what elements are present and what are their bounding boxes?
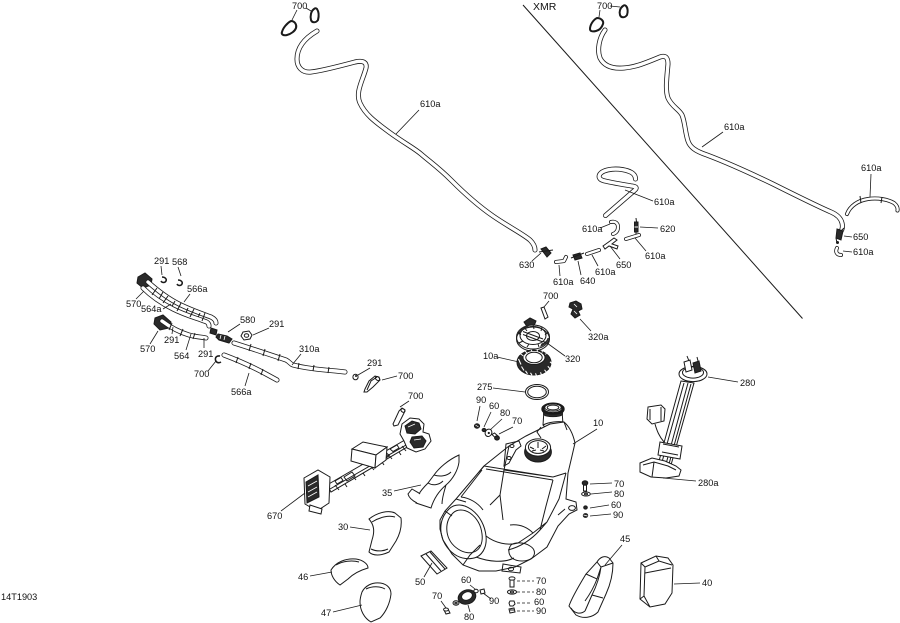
svg-text:291: 291	[198, 349, 213, 359]
svg-text:10: 10	[593, 418, 603, 428]
svg-text:700: 700	[398, 371, 413, 381]
svg-text:280: 280	[740, 378, 755, 388]
svg-text:564a: 564a	[141, 304, 162, 314]
svg-text:650: 650	[616, 260, 631, 270]
svg-text:50: 50	[415, 577, 425, 587]
svg-text:620: 620	[660, 224, 675, 234]
svg-text:46: 46	[298, 572, 308, 582]
svg-text:640: 640	[580, 276, 595, 286]
svg-text:70: 70	[512, 416, 522, 426]
svg-text:650: 650	[853, 232, 868, 242]
svg-text:47: 47	[321, 608, 331, 618]
svg-text:80: 80	[500, 408, 510, 418]
svg-text:60: 60	[489, 401, 499, 411]
svg-text:70: 70	[614, 479, 624, 489]
svg-text:275: 275	[477, 382, 492, 392]
svg-text:310a: 310a	[299, 344, 320, 354]
svg-text:320a: 320a	[588, 332, 609, 342]
svg-text:30: 30	[338, 522, 348, 532]
svg-text:610a: 610a	[861, 163, 882, 173]
svg-text:291: 291	[154, 256, 169, 266]
svg-text:610a: 610a	[724, 122, 745, 132]
svg-text:566a: 566a	[231, 387, 252, 397]
svg-text:566a: 566a	[187, 284, 208, 294]
svg-text:80: 80	[536, 587, 546, 597]
svg-text:580: 580	[240, 315, 255, 325]
svg-text:570: 570	[126, 299, 141, 309]
svg-text:14T1903: 14T1903	[1, 592, 37, 602]
svg-text:60: 60	[611, 500, 621, 510]
svg-text:610a: 610a	[595, 267, 616, 277]
svg-text:564: 564	[174, 351, 189, 361]
svg-text:700: 700	[543, 291, 558, 301]
svg-text:700: 700	[194, 369, 209, 379]
svg-text:291: 291	[367, 358, 382, 368]
svg-text:70: 70	[536, 576, 546, 586]
svg-text:320: 320	[565, 354, 580, 364]
svg-text:700: 700	[408, 391, 423, 401]
svg-text:35: 35	[382, 488, 392, 498]
svg-text:291: 291	[269, 319, 284, 329]
svg-text:280a: 280a	[698, 478, 719, 488]
svg-text:610a: 610a	[853, 247, 874, 257]
svg-text:90: 90	[489, 596, 499, 606]
svg-text:610a: 610a	[654, 197, 675, 207]
svg-text:10a: 10a	[483, 351, 499, 361]
svg-text:700: 700	[292, 1, 307, 11]
svg-text:70: 70	[432, 591, 442, 601]
svg-text:291: 291	[164, 335, 179, 345]
svg-text:XMR: XMR	[533, 1, 557, 13]
svg-text:610a: 610a	[582, 224, 603, 234]
svg-text:568: 568	[172, 257, 187, 267]
svg-text:45: 45	[620, 534, 630, 544]
svg-text:630: 630	[519, 260, 534, 270]
svg-text:610a: 610a	[420, 99, 441, 109]
svg-text:90: 90	[536, 606, 546, 616]
svg-text:610a: 610a	[553, 277, 574, 287]
svg-text:60: 60	[461, 575, 471, 585]
svg-text:40: 40	[702, 578, 712, 588]
svg-text:80: 80	[614, 489, 624, 499]
svg-text:670: 670	[267, 511, 282, 521]
svg-text:610a: 610a	[645, 251, 666, 261]
svg-text:90: 90	[476, 395, 486, 405]
svg-text:570: 570	[140, 344, 155, 354]
svg-text:90: 90	[613, 510, 623, 520]
svg-text:80: 80	[464, 612, 474, 622]
